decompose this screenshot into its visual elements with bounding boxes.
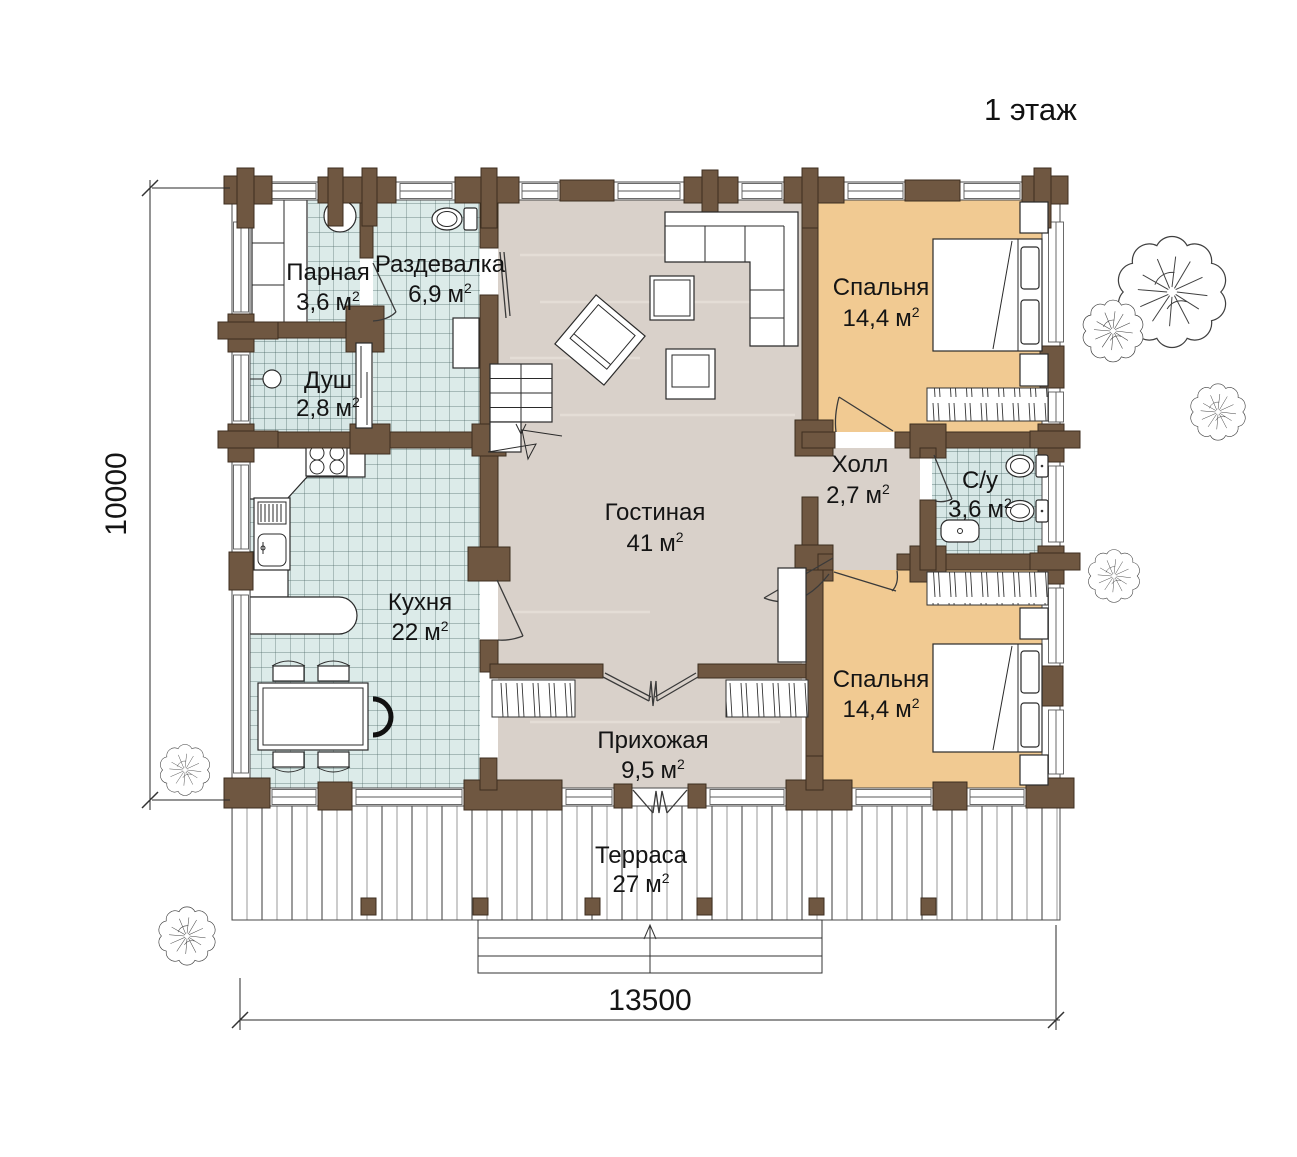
terrace-steps [478,920,822,973]
razdevalka-toilet-icon [432,208,477,230]
bed-icon [933,644,1042,752]
floor-plan-canvas: 10000 13500 Парная 3,6м2 Раздевалка 6,9м… [0,0,1297,1157]
sink-unit-icon [254,498,290,570]
room-label-dush: Душ [304,367,352,394]
razdevalka-cabinet [453,318,479,368]
tree-icon [159,907,215,965]
tree-icon [1089,550,1140,603]
floor-plan-page: 10000 13500 Парная 3,6м2 Раздевалка 6,9м… [0,0,1297,1157]
kitchen-counter-strip [250,568,288,597]
room-area-dush: 2,8м2 [296,394,360,422]
nightstand-icon [1020,608,1048,639]
room-label-terrasa: Терраса [595,842,688,869]
room-area-spalnya1: 14,4м2 [842,304,919,332]
room-label-holl: Холл [832,451,889,478]
room-label-spalnya1: Спальня [833,274,929,301]
room-label-kuhnya: Кухня [388,589,452,616]
room-area-spalnya2: 14,4м2 [842,695,919,723]
tree-icon [1083,300,1143,362]
bidet-icon [1006,500,1048,522]
coffee-table-icon [650,276,694,320]
sink-icon [941,520,979,542]
wardrobe [927,572,1048,605]
nightstand-icon [1020,354,1048,386]
armchair-icon [666,349,715,399]
room-area-prihozhaya: 9,5м2 [621,756,685,784]
room-area-parnaya: 3,6м2 [296,288,360,316]
wardrobe [927,388,1048,421]
sliding-door-dush [356,343,372,428]
floor-title: 1 этаж [984,92,1077,127]
wardrobe [726,680,808,717]
room-label-su: С/у [962,467,998,494]
cupboard [778,568,806,662]
dining-table-icon [258,683,368,750]
bed-icon [933,239,1042,351]
room-area-su: 3,6м2 [948,495,1012,523]
dim-width-label: 13500 [608,984,691,1017]
room-label-prihozhaya: Прихожая [597,727,708,754]
dim-height: 10000 [100,180,230,810]
wardrobe [492,680,575,717]
tree-icon [160,745,209,796]
room-label-razdevalka: Раздевалка [375,251,506,278]
left-windows [234,222,249,773]
room-area-holl: 2,7м2 [826,481,890,509]
room-label-gostinaya: Гостиная [605,499,706,526]
tree-icon [1191,384,1245,440]
toilet-icon [1006,455,1048,477]
nightstand-icon [1020,755,1048,785]
razdevalka-floor [373,200,480,432]
dim-height-label: 10000 [100,452,133,535]
room-area-razdevalka: 6,9м2 [408,280,472,308]
kitchen-bar-counter [250,597,357,634]
room-label-parnaya: Парная [286,259,370,286]
nightstand-icon [1020,202,1048,233]
room-label-spalnya2: Спальня [833,666,929,693]
